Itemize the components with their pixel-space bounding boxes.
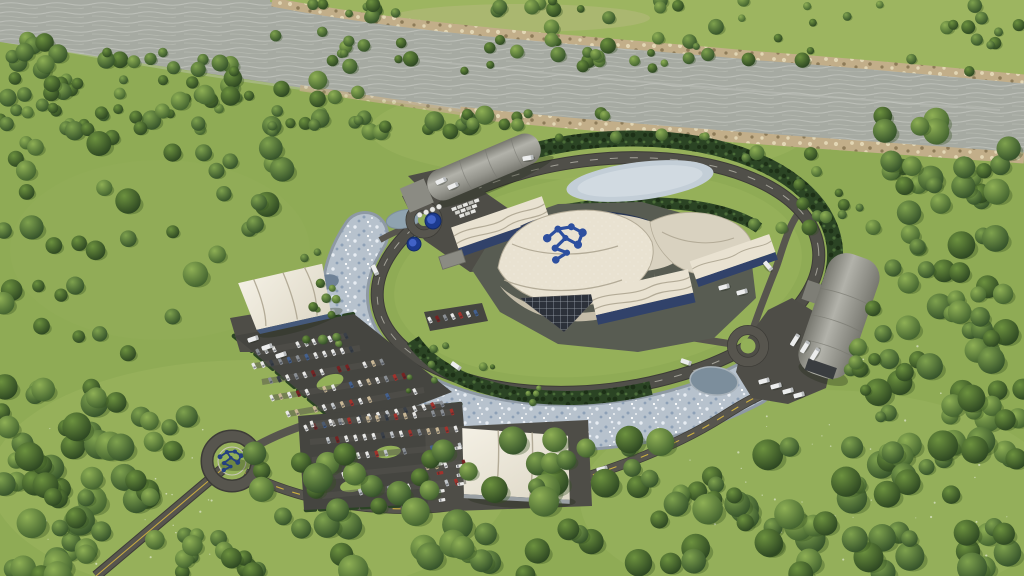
- tree: [641, 470, 659, 488]
- storage-tank-blue-top: [427, 215, 436, 224]
- tree: [896, 315, 921, 340]
- tree: [993, 284, 1013, 304]
- tree: [308, 302, 318, 312]
- tree: [191, 116, 205, 130]
- tree: [318, 335, 328, 345]
- tree: [983, 330, 1000, 347]
- tree: [683, 52, 695, 64]
- flower-speckle: [199, 511, 201, 513]
- tree: [71, 235, 87, 251]
- tree: [19, 215, 43, 239]
- tree: [856, 204, 864, 212]
- tree: [163, 143, 181, 161]
- tree: [650, 511, 668, 529]
- tree: [161, 419, 177, 435]
- tree: [898, 272, 919, 293]
- tree: [158, 48, 168, 58]
- tree: [895, 177, 913, 195]
- tree: [610, 131, 622, 143]
- tree: [0, 117, 14, 131]
- tree: [486, 61, 494, 69]
- tree: [930, 193, 951, 214]
- flower-speckle: [171, 494, 172, 495]
- flower-speckle: [829, 424, 830, 425]
- tree: [391, 8, 400, 17]
- tree: [460, 67, 468, 75]
- tree: [958, 384, 986, 412]
- tree: [849, 355, 863, 369]
- tree: [140, 412, 159, 431]
- tree: [308, 71, 327, 90]
- flower-speckle: [209, 554, 210, 555]
- tree: [86, 131, 111, 156]
- tree: [176, 405, 198, 427]
- tree: [17, 508, 47, 538]
- tree: [544, 19, 559, 34]
- tree: [986, 41, 994, 49]
- tree: [44, 75, 61, 92]
- flower-speckle: [741, 468, 742, 469]
- tree: [652, 32, 664, 44]
- tree: [333, 443, 356, 466]
- tree: [183, 262, 208, 287]
- tree: [708, 19, 724, 35]
- tree: [134, 121, 148, 135]
- tree: [701, 48, 714, 61]
- tree: [654, 1, 666, 13]
- flower-speckle: [173, 525, 174, 526]
- tree: [16, 160, 36, 180]
- tree: [629, 55, 640, 66]
- tree: [66, 277, 84, 295]
- tree: [302, 335, 310, 343]
- flower-speckle: [870, 448, 872, 450]
- flower-speckle: [842, 559, 844, 561]
- tree: [216, 186, 231, 201]
- tree: [804, 147, 818, 161]
- tree: [308, 119, 320, 131]
- tree: [590, 49, 601, 60]
- tree: [291, 518, 311, 538]
- tree: [351, 86, 364, 99]
- tree: [544, 33, 558, 47]
- tree: [77, 489, 94, 506]
- tree: [795, 52, 810, 67]
- tree: [114, 88, 126, 100]
- tree: [186, 76, 198, 88]
- tree: [66, 507, 87, 528]
- tree: [332, 295, 341, 304]
- tree: [36, 99, 49, 112]
- tree: [106, 392, 127, 413]
- tree: [495, 35, 505, 45]
- tree: [429, 345, 438, 354]
- tree: [906, 54, 916, 64]
- tree: [270, 157, 295, 182]
- tree: [660, 553, 682, 575]
- flower-speckle: [175, 532, 176, 533]
- tree: [459, 462, 477, 480]
- flower-speckle: [689, 459, 690, 460]
- tree: [340, 49, 348, 57]
- tree: [793, 179, 805, 191]
- tree: [994, 27, 1003, 36]
- tree: [125, 470, 146, 491]
- tree: [182, 535, 203, 556]
- tree: [556, 450, 576, 470]
- tree: [813, 511, 837, 535]
- tree: [741, 153, 750, 162]
- tree: [394, 55, 402, 63]
- tree: [623, 459, 641, 477]
- tree: [427, 361, 435, 369]
- tree: [113, 104, 123, 114]
- flower-speckle: [853, 517, 854, 518]
- tree: [102, 48, 112, 58]
- flower-speckle: [202, 429, 204, 431]
- tree: [511, 118, 524, 131]
- tree: [72, 78, 83, 89]
- tree: [270, 30, 281, 41]
- tree: [529, 399, 536, 406]
- tree: [964, 66, 975, 77]
- flower-speckle: [976, 521, 978, 523]
- tree: [802, 220, 818, 236]
- tree: [267, 121, 277, 131]
- tree: [841, 436, 863, 458]
- flower-speckle: [150, 556, 152, 558]
- tree: [525, 391, 530, 396]
- tree: [882, 441, 904, 463]
- tree: [327, 55, 338, 66]
- tree: [155, 104, 170, 119]
- aerial-render: [0, 0, 1024, 576]
- tree: [332, 333, 341, 342]
- tree: [167, 61, 180, 74]
- tree: [600, 38, 616, 54]
- tree: [961, 20, 975, 34]
- tree: [15, 442, 44, 471]
- tree: [918, 261, 935, 278]
- tree: [326, 498, 349, 521]
- tree: [948, 20, 958, 30]
- tree: [119, 75, 128, 84]
- flower-speckle: [49, 428, 50, 429]
- tree: [229, 66, 239, 76]
- tree: [625, 549, 652, 576]
- tree: [317, 27, 327, 37]
- tree: [407, 374, 413, 380]
- tree: [72, 330, 85, 343]
- tree: [838, 199, 850, 211]
- tree: [655, 128, 667, 140]
- tree: [748, 218, 760, 230]
- tree: [860, 385, 871, 396]
- tree: [523, 109, 532, 118]
- tree: [329, 285, 336, 292]
- tree: [577, 60, 589, 72]
- tree: [648, 63, 658, 73]
- tree: [880, 150, 902, 172]
- flower-speckle: [191, 457, 193, 459]
- tree: [442, 124, 458, 140]
- tree: [525, 538, 550, 563]
- tree: [451, 536, 475, 560]
- tree: [92, 326, 107, 341]
- tree: [221, 548, 242, 569]
- tree: [401, 497, 429, 525]
- tree: [212, 55, 229, 72]
- tree: [557, 518, 579, 540]
- tree: [911, 117, 930, 136]
- tree: [529, 486, 559, 516]
- tree: [15, 43, 34, 62]
- tree: [536, 385, 541, 390]
- tree: [62, 412, 91, 441]
- roundabout-island: [741, 339, 756, 354]
- tree: [244, 91, 254, 101]
- tree: [672, 0, 684, 12]
- tree: [208, 163, 224, 179]
- tree: [550, 47, 565, 62]
- tree: [274, 507, 292, 525]
- tree: [141, 488, 159, 506]
- flower-speckle: [974, 477, 975, 478]
- tree: [492, 0, 507, 15]
- tree: [876, 1, 884, 9]
- flower-speckle: [47, 539, 48, 540]
- tree: [838, 210, 847, 219]
- tree: [222, 153, 238, 169]
- tree: [948, 300, 972, 324]
- flower-speckle: [155, 478, 157, 480]
- tree: [9, 72, 22, 85]
- tree: [27, 139, 44, 156]
- tree: [107, 434, 134, 461]
- tree: [661, 59, 669, 67]
- tree: [835, 189, 843, 197]
- tree: [208, 246, 226, 264]
- tree: [48, 103, 59, 114]
- tree: [171, 92, 190, 111]
- tree: [902, 156, 922, 176]
- tree: [54, 288, 67, 301]
- tree: [868, 353, 881, 366]
- tree: [874, 325, 891, 342]
- tree: [970, 307, 990, 327]
- tree: [379, 120, 391, 132]
- tree: [749, 145, 764, 160]
- tree: [33, 318, 50, 335]
- tree: [577, 5, 585, 13]
- tree: [949, 262, 970, 283]
- tree: [533, 390, 539, 396]
- tree: [970, 286, 986, 302]
- tree: [300, 254, 308, 262]
- tree: [803, 2, 811, 10]
- tree: [726, 487, 742, 503]
- flower-speckle: [745, 481, 746, 482]
- tree: [246, 216, 264, 234]
- flower-speckle: [165, 493, 167, 495]
- tree: [976, 163, 991, 178]
- flower-speckle: [737, 451, 739, 453]
- tree: [499, 119, 510, 130]
- flower-speckle: [862, 359, 864, 361]
- tree: [874, 481, 901, 508]
- flower-speckle: [830, 445, 832, 447]
- tree: [17, 87, 32, 102]
- tree: [191, 62, 206, 77]
- flower-speckle: [801, 501, 802, 502]
- tree: [328, 311, 336, 319]
- tree: [221, 86, 241, 106]
- tree: [52, 520, 69, 537]
- tree: [971, 34, 983, 46]
- tree: [919, 459, 935, 475]
- tree: [510, 45, 524, 59]
- tree: [431, 377, 438, 384]
- tree: [309, 91, 325, 107]
- tree: [466, 118, 478, 130]
- tree: [321, 293, 331, 303]
- tree: [755, 529, 783, 557]
- tree: [21, 106, 33, 118]
- tree: [897, 200, 921, 224]
- tree: [145, 530, 165, 550]
- tree: [163, 441, 183, 461]
- tree: [127, 55, 140, 68]
- tree: [342, 59, 357, 74]
- tree: [542, 427, 567, 452]
- tree: [316, 279, 325, 288]
- tree: [165, 309, 181, 325]
- tree: [31, 378, 55, 402]
- tree: [982, 225, 1009, 252]
- tree: [251, 194, 267, 210]
- tree: [576, 439, 595, 458]
- tree: [975, 12, 988, 25]
- tree: [811, 166, 822, 177]
- tree: [314, 248, 321, 255]
- tree: [780, 437, 799, 456]
- tree: [424, 111, 444, 131]
- tree: [479, 362, 488, 371]
- tree: [954, 520, 980, 546]
- flower-speckle: [762, 494, 763, 495]
- flower-speckle: [930, 516, 932, 518]
- tree: [616, 426, 644, 454]
- tree: [343, 36, 354, 47]
- tree: [358, 39, 371, 52]
- tree: [820, 211, 832, 223]
- tree: [442, 342, 449, 349]
- tree: [524, 0, 539, 14]
- tree: [909, 239, 925, 255]
- tree: [195, 85, 215, 105]
- flower-speckle: [904, 419, 906, 421]
- flower-speckle: [940, 392, 942, 394]
- tree: [76, 545, 95, 564]
- tree: [948, 231, 976, 259]
- flower-speckle: [916, 345, 918, 347]
- tree: [396, 38, 407, 49]
- tree: [693, 43, 700, 50]
- tree: [708, 477, 724, 493]
- tree: [285, 118, 295, 128]
- tree: [984, 179, 1010, 205]
- tree: [737, 514, 754, 531]
- tree: [961, 436, 988, 463]
- flower-speckle: [95, 563, 97, 565]
- flower-speckle: [766, 426, 767, 427]
- flower-speckle: [208, 499, 209, 500]
- tree: [370, 498, 387, 515]
- tree: [96, 180, 112, 196]
- flower-speckle: [1006, 516, 1007, 517]
- tree: [873, 119, 897, 143]
- tree: [884, 259, 901, 276]
- tree: [303, 463, 333, 493]
- storage-tank-blue-top: [409, 239, 417, 247]
- tree: [928, 430, 959, 461]
- tree: [942, 485, 960, 503]
- tree: [692, 494, 723, 525]
- tree: [490, 364, 495, 369]
- tree: [647, 49, 655, 57]
- tree: [243, 441, 267, 465]
- tree: [843, 12, 852, 21]
- tree: [681, 549, 706, 574]
- aerial-render-stage: [0, 0, 1024, 576]
- tree: [32, 280, 44, 292]
- tree: [158, 75, 168, 85]
- tree: [115, 188, 140, 213]
- tree: [484, 42, 495, 53]
- tree: [978, 347, 1005, 374]
- flower-speckle: [774, 498, 776, 500]
- tree: [701, 132, 709, 140]
- tree: [259, 136, 283, 160]
- tree: [95, 106, 108, 119]
- tree: [91, 521, 111, 541]
- flower-speckle: [211, 499, 213, 501]
- flower-speckle: [812, 444, 813, 445]
- tree: [36, 55, 54, 73]
- tree: [144, 432, 164, 452]
- roundabout-southeast: [732, 330, 764, 362]
- tree: [499, 426, 527, 454]
- flower-speckle: [821, 435, 822, 436]
- tree: [809, 19, 817, 27]
- tree: [807, 47, 814, 54]
- flower-speckle: [766, 415, 768, 417]
- tree: [120, 345, 136, 361]
- tree: [953, 156, 975, 178]
- tree: [166, 225, 179, 238]
- tree: [44, 488, 62, 506]
- tree: [81, 467, 104, 490]
- tree: [273, 81, 289, 97]
- tree: [271, 105, 283, 117]
- tree: [916, 353, 943, 380]
- tree: [591, 469, 620, 498]
- tree: [420, 480, 440, 500]
- tree: [481, 476, 508, 503]
- flower-speckle: [145, 519, 146, 520]
- tree: [406, 388, 411, 393]
- flower-speckle: [934, 502, 936, 504]
